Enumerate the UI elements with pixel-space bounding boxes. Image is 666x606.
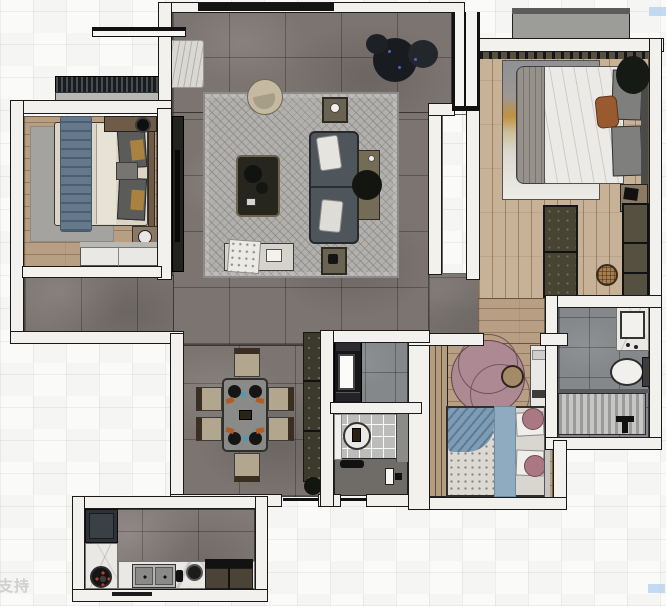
corner-plant [616, 56, 650, 94]
window-bar-left [92, 27, 186, 37]
balcony-planter [55, 76, 162, 93]
void-shaft [442, 114, 468, 274]
nightstand-decor [623, 187, 639, 201]
console-plant [352, 170, 382, 200]
inner-bath-shelf-top [336, 343, 360, 351]
closet-right [622, 203, 649, 298]
closet-right-divider [622, 242, 649, 244]
bath-bottle-2 [634, 345, 638, 349]
bedroom-right-pillow-2 [611, 125, 643, 176]
bedroom-left-headboard [148, 120, 155, 228]
living-room-floor-alcove [24, 275, 174, 333]
round-basin-items [352, 428, 361, 442]
wall-bedroom-bottom-south [418, 497, 567, 510]
wall-kitchen-top [72, 496, 268, 509]
wall-inner-bath-top [320, 330, 430, 343]
bedroom-left-sheet-fold [96, 124, 116, 224]
floor-plant-living-2 [408, 40, 438, 68]
burner [90, 566, 112, 588]
highlight-artifact-bottom [648, 584, 665, 593]
bench-book [266, 249, 282, 262]
pot [186, 564, 203, 581]
cup-1 [241, 392, 246, 397]
plant-blue-berry-3 [398, 66, 401, 69]
kitchen-window-line [112, 592, 152, 596]
wall-inner-bath-west [320, 330, 334, 507]
sofa-seam [311, 186, 357, 188]
wall-outer-east [649, 38, 662, 450]
entry-door-seam [464, 12, 466, 110]
dining-chair-east-2 [268, 417, 294, 441]
kettle [330, 103, 340, 113]
wall-kitchen-west [72, 496, 85, 602]
wall-dining-west [170, 333, 184, 507]
wall-bedroom-left-east [157, 108, 172, 280]
wall-kitchen-south [72, 589, 268, 602]
place-setting-2 [249, 385, 262, 398]
wall-bedroom-left-top [10, 100, 172, 114]
pink-pillow-1 [522, 408, 544, 430]
side-table-decor [328, 254, 338, 264]
highlight-artifact-top [649, 7, 666, 16]
pink-pillow-2 [524, 455, 546, 477]
refrigerator-top [89, 513, 114, 539]
dining-chair-north [234, 348, 260, 377]
wall-bedroom-right-south [545, 295, 662, 308]
center-dish [239, 410, 252, 420]
wall-left-upper [158, 2, 172, 114]
place-setting-3 [228, 432, 241, 445]
coffee-table-plant [244, 165, 262, 183]
living-room-floor-connector [428, 273, 480, 335]
inner-bath-shelf-bottom [336, 392, 360, 401]
entry-door-frame [452, 12, 480, 110]
wall-outer-bottom-left [10, 331, 184, 344]
coffee-table-plant-2 [256, 182, 268, 194]
cabinet-seam [228, 568, 230, 589]
bench-throw [227, 239, 261, 274]
entry-threshold [452, 106, 480, 111]
curtain-rail [480, 52, 648, 59]
inner-bath-strip [396, 414, 408, 462]
sink-basin-1 [135, 567, 153, 585]
inner-bath-floor-item [340, 460, 364, 468]
wall-bedroom-bottom-west [408, 330, 430, 510]
bedroom-bottom-pouf [501, 365, 524, 388]
wall-bedroom-left-divider [22, 266, 162, 278]
console-cup [368, 155, 375, 162]
coffee-table-books [246, 198, 256, 206]
shower-fixture-stem [622, 422, 628, 433]
sliding-door-leaf-2 [341, 498, 367, 501]
wardrobe-top-shelf [80, 242, 158, 248]
floor-plan-canvas: 支持 [0, 0, 666, 606]
balcony-slab-edge [512, 8, 630, 14]
bedroom-bottom-blue-runner [494, 406, 516, 497]
wall-bathroom-right-west [545, 295, 558, 450]
floor-plant-living-3 [366, 34, 388, 54]
inner-bath-mirror [338, 354, 355, 390]
wall-bedroom-right-top [452, 38, 664, 52]
closet-right-divider-2 [622, 272, 649, 274]
wall-bedroom-left-west [10, 100, 24, 344]
wall-inner-bath-mid [330, 402, 422, 414]
door-handle-plate [385, 468, 394, 485]
sliding-door-leaf-1 [283, 498, 319, 501]
sofa-throw-bottom [318, 199, 343, 233]
watermark-text: 支持 [0, 575, 30, 596]
place-setting-1 [228, 385, 241, 398]
cup-2 [243, 436, 248, 441]
dining-chair-west-2 [196, 417, 222, 441]
wardrobe-door-seam [118, 248, 119, 266]
plant-blue-berry-2 [414, 58, 417, 61]
pillow-accent-2 [130, 190, 144, 211]
pillow-accent-1 [130, 139, 145, 160]
shower-floor [558, 393, 646, 435]
inner-bath-door [334, 414, 342, 460]
dining-chair-east-1 [268, 387, 294, 411]
dining-chair-south [234, 453, 260, 482]
bath-right-basin [620, 311, 645, 339]
rattan-pouf [596, 264, 618, 286]
cooktop-bar [205, 559, 253, 568]
bedroom-left-blue-throw [60, 116, 92, 232]
orange-pillow [594, 95, 619, 129]
tv-screen [175, 150, 180, 242]
place-setting-4 [249, 432, 262, 445]
window-bar-top-living [198, 3, 334, 11]
wall-entry-stub [428, 103, 455, 116]
sofa-throw-top [316, 135, 343, 172]
bath-bottle-1 [626, 343, 630, 347]
round-speaker [135, 117, 151, 133]
sink-basin-2 [155, 567, 173, 585]
slatted-wardrobe [428, 343, 448, 497]
door-handle-knob [395, 473, 402, 480]
toilet [610, 358, 644, 386]
pillow-middle [116, 162, 138, 180]
plant-blue-berry [388, 50, 391, 53]
wall-living-east [428, 103, 442, 275]
faucet [176, 570, 183, 582]
dining-chair-west-1 [196, 387, 222, 411]
wall-kitchen-east [255, 496, 268, 602]
wall-bedroom-bottom-top-b [540, 333, 568, 346]
closet-left-divider [543, 251, 578, 253]
